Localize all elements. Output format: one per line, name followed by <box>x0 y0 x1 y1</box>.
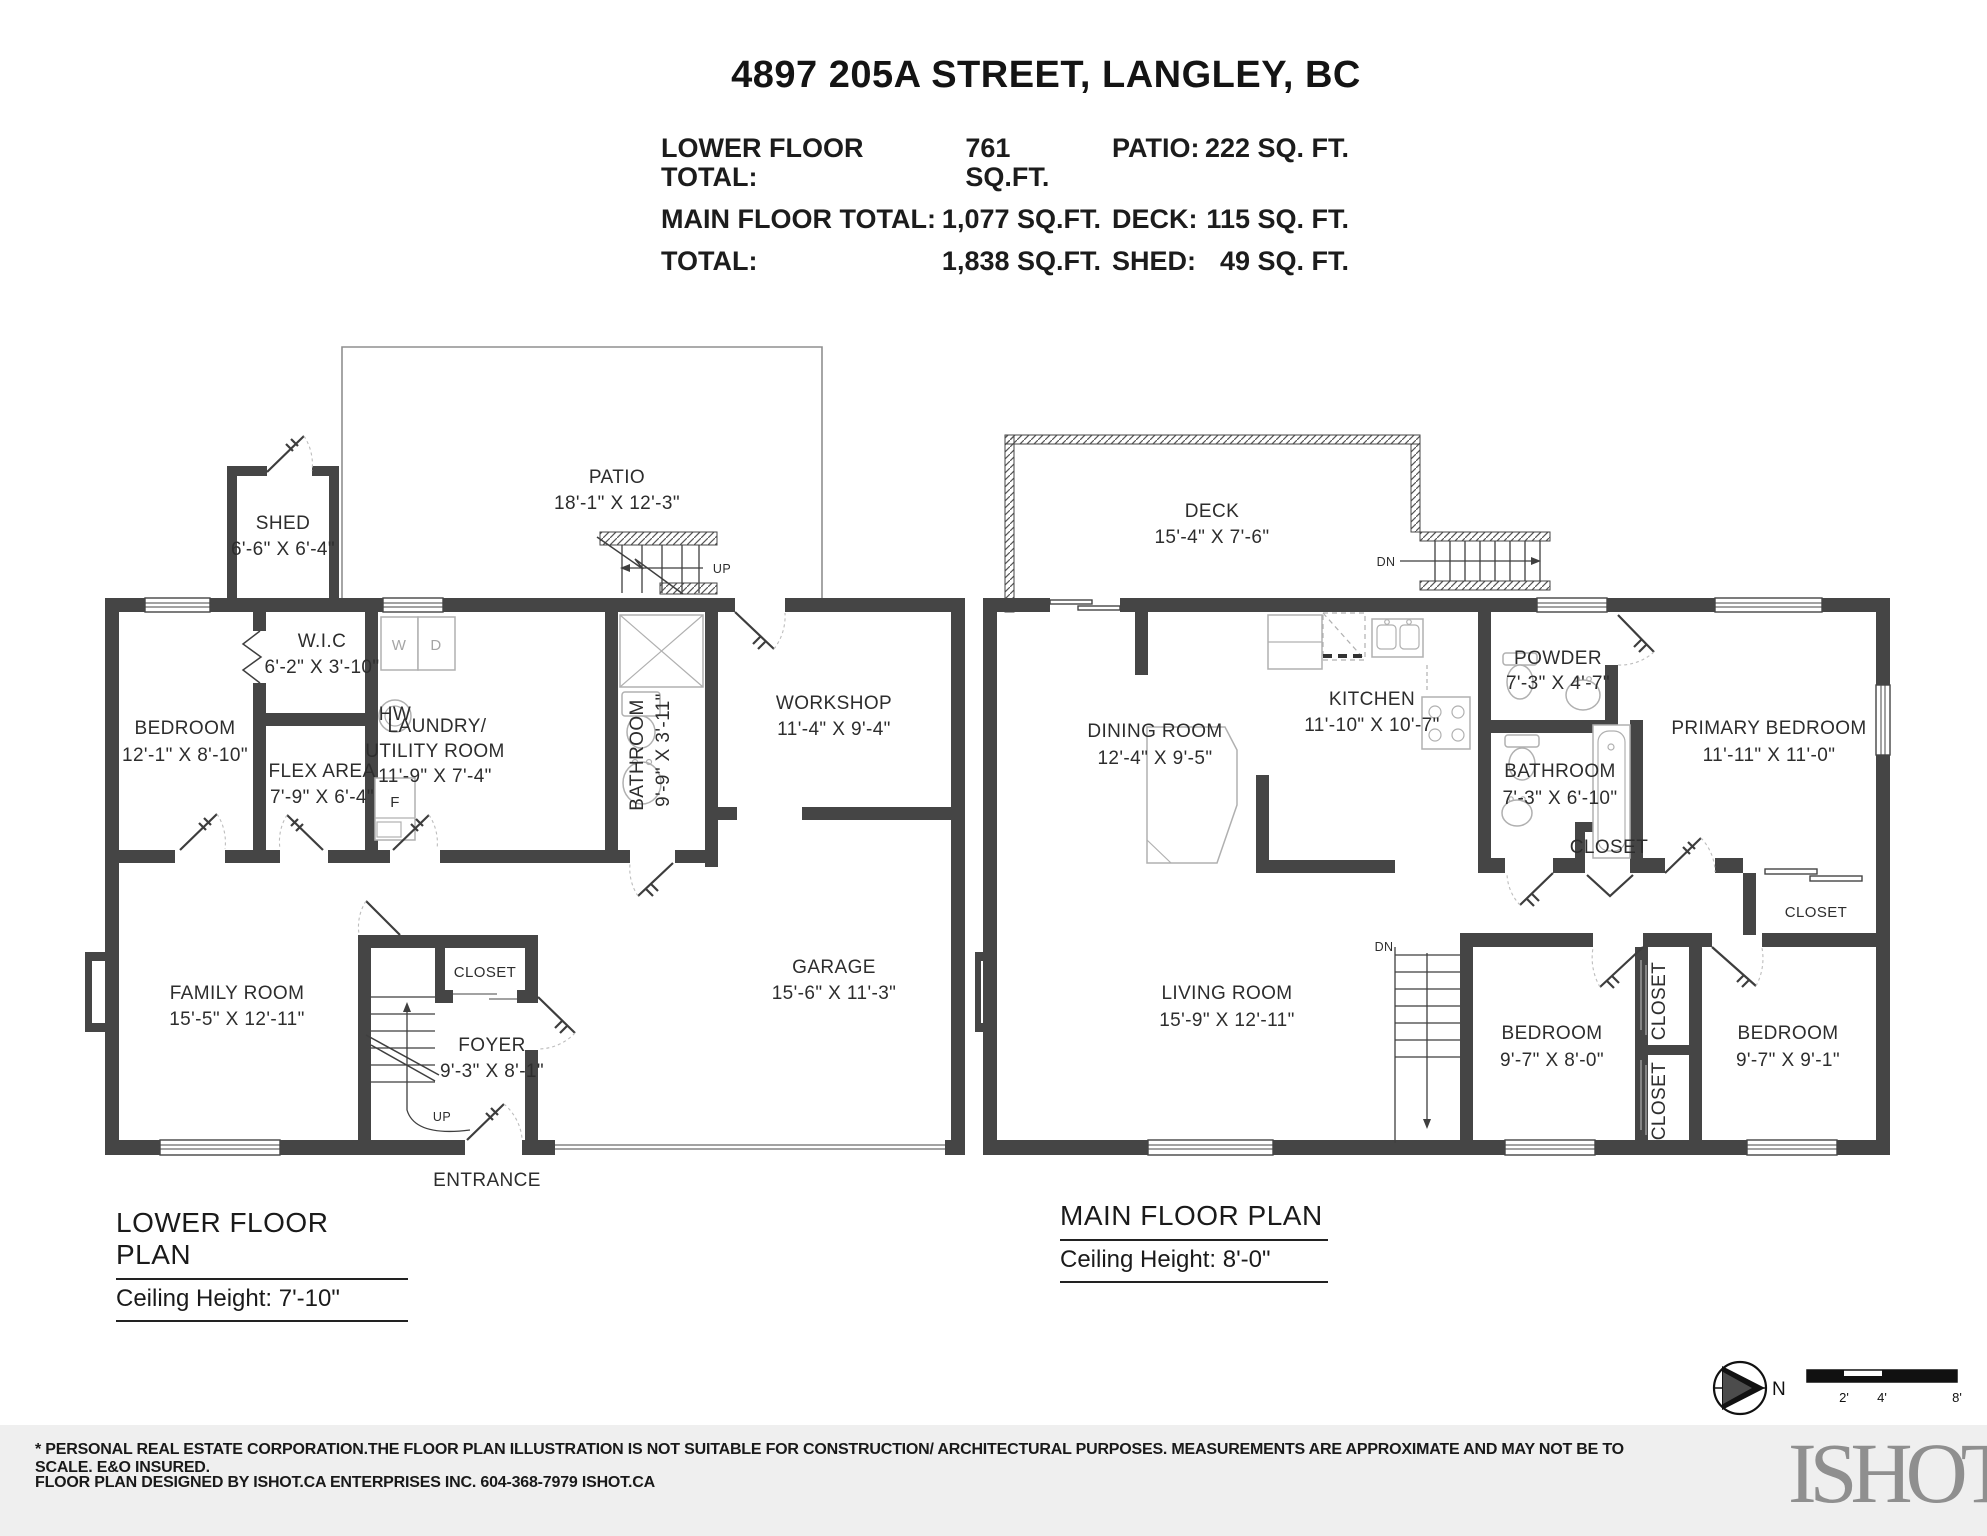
room-label: CLOSET <box>1570 837 1648 858</box>
room-label: GARAGE <box>792 957 876 978</box>
lower-plan-title-block: LOWER FLOOR PLAN Ceiling Height: 7'-10" <box>116 1207 408 1322</box>
lower-floor-plan-drawing: PATIO 18'-1" X 12'-3" UP SHED 6'-6" X 6'… <box>85 335 1005 1205</box>
main-floor-plan-drawing: DECK 15'-4" X 7'-6" DN <box>975 335 1900 1205</box>
summary-row: LOWER FLOOR TOTAL:761 SQ.FT. PATIO:222 S… <box>661 134 1349 192</box>
summary-value: 1,077 SQ.FT. <box>942 205 1101 234</box>
scale-tick: 4' <box>1877 1390 1887 1405</box>
ceiling-height: Ceiling Height: 8'-0" <box>1060 1241 1328 1283</box>
shed: SHED 6'-6" X 6'-4" <box>227 436 339 612</box>
room-label: PRIMARY BEDROOM <box>1671 718 1866 739</box>
summary-row-total: TOTAL:1,838 SQ.FT. SHED:49 SQ. FT. <box>661 247 1349 276</box>
room-label: WORKSHOP <box>776 693 892 714</box>
summary-value: 222 SQ. FT. <box>1205 134 1349 192</box>
room-dims: 7'-3" X 6'-10" <box>1502 788 1617 809</box>
room-label: BEDROOM <box>135 718 236 739</box>
summary-label: PATIO: <box>1112 134 1200 192</box>
room-dims: 18'-1" X 12'-3" <box>554 493 680 514</box>
deck-stairs: DN <box>1377 532 1550 590</box>
room-dims: 9'-3" X 8'-1" <box>440 1061 544 1082</box>
room-dims: 6'-2" X 3'-10" <box>264 657 379 678</box>
patio-stairs: UP <box>597 532 731 594</box>
room-label: CLOSET <box>454 964 516 981</box>
room-label: PATIO <box>589 467 645 488</box>
disclaimer-line1: * PERSONAL REAL ESTATE CORPORATION.THE F… <box>35 1441 1635 1477</box>
stairs-up-label: UP <box>433 1110 451 1124</box>
summary-value: 1,838 SQ.FT. <box>942 247 1101 276</box>
north-label: N <box>1772 1379 1786 1400</box>
room-label: BATHROOM <box>627 699 648 811</box>
ceiling-height: Ceiling Height: 7'-10" <box>116 1280 408 1322</box>
room-label: CLOSET <box>1649 962 1670 1040</box>
floor-plan-page: 4897 205A STREET, LANGLEY, BC LOWER FLOO… <box>0 0 1987 1536</box>
room-label: SHED <box>256 513 310 534</box>
room-label: LIVING ROOM <box>1161 983 1292 1004</box>
room-label: DINING ROOM <box>1087 721 1222 742</box>
ishot-logo: ISHOT <box>1788 1423 1987 1523</box>
room-dims: 7'-3" X 4'-7" <box>1506 673 1610 694</box>
room-label: FAMILY ROOM <box>170 983 305 1004</box>
deck: DECK 15'-4" X 7'-6" <box>1005 435 1420 612</box>
scale-segment <box>1882 1370 1957 1382</box>
summary-label: DECK: <box>1112 205 1198 234</box>
page-title: 4897 205A STREET, LANGLEY, BC <box>696 54 1396 97</box>
entrance-label: ENTRANCE <box>433 1170 541 1191</box>
summary-label: LOWER FLOOR TOTAL: <box>661 134 965 192</box>
scale-bar: 2' 4' 8' <box>1805 1362 1970 1417</box>
freezer-label: F <box>390 794 400 811</box>
room-label: W.I.C <box>298 631 346 652</box>
room-label: DECK <box>1185 501 1239 522</box>
room-label: LAUNDRY/ <box>388 716 487 737</box>
closet-bifold-door <box>1587 875 1633 896</box>
scale-segment <box>1844 1376 1882 1382</box>
room-dims: 15'-9" X 12'-11" <box>1159 1010 1295 1031</box>
room-dims: 11'-10" X 10'-7" <box>1304 715 1440 736</box>
washer-label: W <box>392 637 407 654</box>
room-label: BEDROOM <box>1738 1023 1839 1044</box>
room-label: BATHROOM <box>1504 761 1616 782</box>
room-dims: 11'-9" X 7'-4" <box>378 766 492 787</box>
compass: N <box>1700 1352 1810 1427</box>
summary-label: MAIN FLOOR TOTAL: <box>661 205 936 234</box>
area-summary: LOWER FLOOR TOTAL:761 SQ.FT. PATIO:222 S… <box>661 134 1349 289</box>
room-label: UTILITY ROOM <box>365 741 505 762</box>
room-dims: 15'-4" X 7'-6" <box>1154 527 1269 548</box>
room-dims: 9'-7" X 9'-1" <box>1736 1050 1840 1071</box>
scale-tick: 8' <box>1952 1390 1962 1405</box>
room-dims: 12'-4" X 9'-5" <box>1097 748 1212 769</box>
stairs-dn-label: DN <box>1377 555 1396 569</box>
summary-label: TOTAL: <box>661 247 757 276</box>
room-dims: 9'-7" X 8'-0" <box>1500 1050 1604 1071</box>
summary-row: MAIN FLOOR TOTAL:1,077 SQ.FT. DECK:115 S… <box>661 205 1349 234</box>
summary-value: 761 SQ.FT. <box>965 134 1101 192</box>
stairs-dn-label: DN <box>1375 940 1394 954</box>
summary-value: 49 SQ. FT. <box>1220 247 1349 276</box>
main-plan-title-block: MAIN FLOOR PLAN Ceiling Height: 8'-0" <box>1060 1200 1328 1283</box>
room-dims: 11'-11" X 11'-0" <box>1703 745 1836 766</box>
room-label: BEDROOM <box>1502 1023 1603 1044</box>
scale-tick: 2' <box>1839 1390 1849 1405</box>
plan-title: MAIN FLOOR PLAN <box>1060 1200 1328 1241</box>
room-label: FLEX AREA <box>268 761 375 782</box>
room-label: CLOSET <box>1649 1062 1670 1140</box>
room-dims: 15'-6" X 11'-3" <box>772 983 897 1004</box>
dryer-label: D <box>430 637 441 654</box>
plan-title: LOWER FLOOR PLAN <box>116 1207 408 1280</box>
room-label: POWDER <box>1514 648 1602 669</box>
room-label: KITCHEN <box>1329 689 1415 710</box>
room-dims: 6'-6" X 6'-4" <box>231 539 335 560</box>
room-label: CLOSET <box>1785 904 1847 921</box>
summary-value: 115 SQ. FT. <box>1206 205 1349 234</box>
disclaimer-line2: FLOOR PLAN DESIGNED BY ISHOT.CA ENTERPRI… <box>35 1474 655 1492</box>
room-dims: 7'-9" X 6'-4" <box>270 787 374 808</box>
lower-windows <box>145 598 945 1155</box>
summary-label: SHED: <box>1112 247 1196 276</box>
room-dims: 9'-9" X 3'-11" <box>653 693 674 807</box>
room-dims: 15'-5" X 12'-11" <box>169 1009 305 1030</box>
footer-bar: * PERSONAL REAL ESTATE CORPORATION.THE F… <box>0 1425 1987 1536</box>
main-stairs: DN <box>1375 940 1460 1143</box>
patio-outline <box>342 347 822 612</box>
scale-segment <box>1807 1370 1844 1382</box>
room-label: FOYER <box>458 1035 525 1056</box>
room-dims: 11'-4" X 9'-4" <box>777 719 891 740</box>
stairs-up-label: UP <box>713 562 731 576</box>
room-dims: 12'-1" X 8'-10" <box>122 745 248 766</box>
